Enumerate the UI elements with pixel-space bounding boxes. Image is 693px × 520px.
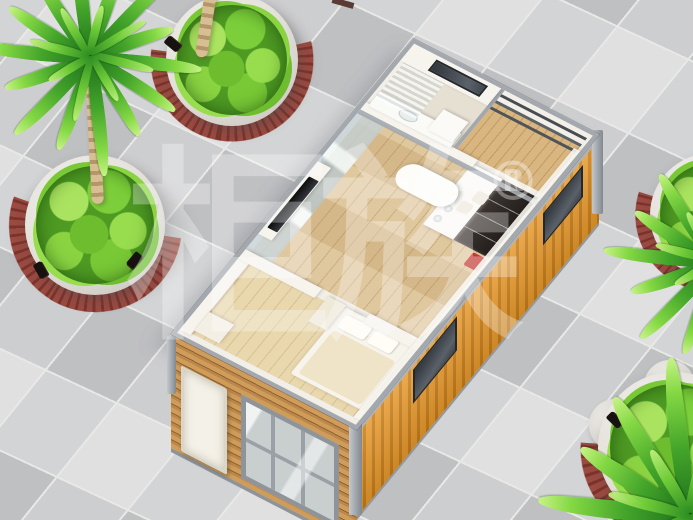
shrub	[177, 5, 288, 116]
registered-mark: ®	[486, 150, 540, 213]
corner-post	[592, 130, 603, 214]
entry-door	[181, 365, 227, 475]
render-scene: 柜族 ®	[0, 0, 693, 520]
corner-post	[349, 423, 362, 515]
watermark-text: 柜族	[126, 146, 510, 352]
